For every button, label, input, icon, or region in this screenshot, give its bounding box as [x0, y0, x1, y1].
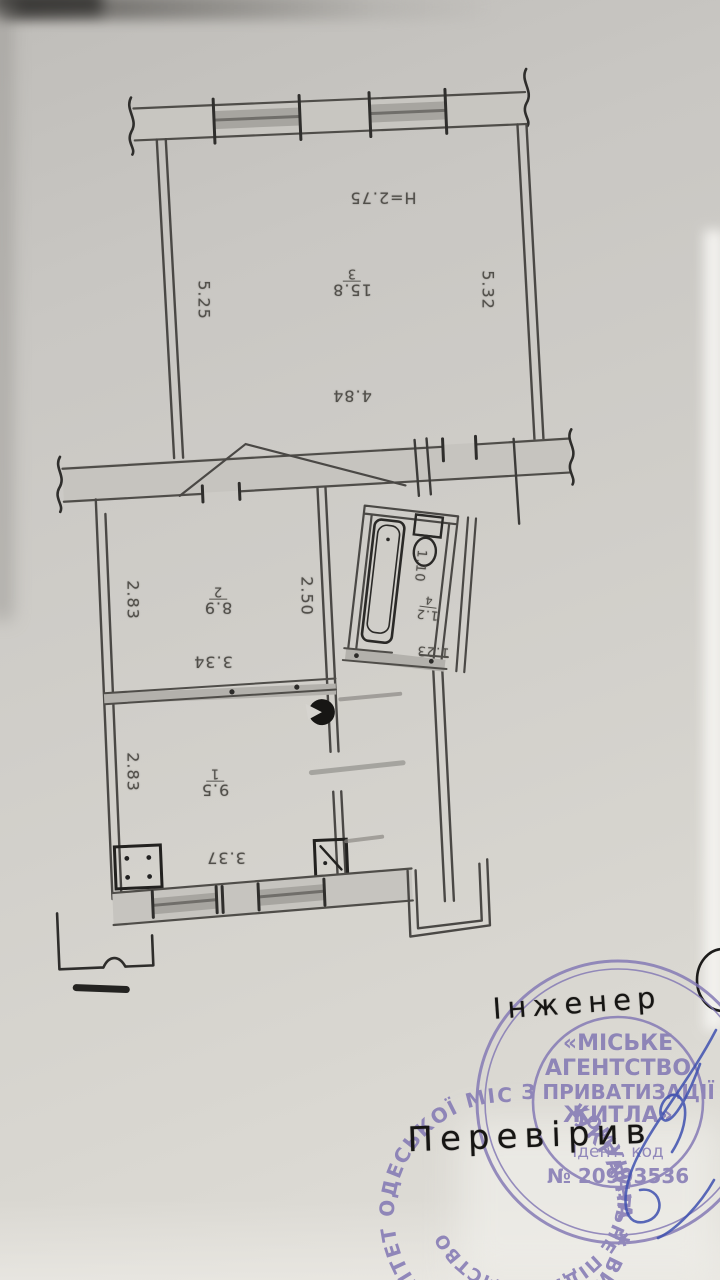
stamp-line2: АГЕНТСТВО: [545, 1056, 691, 1081]
basin-symbol: [305, 699, 335, 726]
top-wall: [128, 69, 531, 155]
checked-by-note: Перевірив: [407, 1112, 653, 1161]
corridor-right-wall: [433, 663, 454, 901]
bathtub-symbol: [361, 519, 405, 644]
agency-stamp: УКРАЇНА ✱ ВИКОНАВЧИЙ КОМІТЕТ ОДЕСЬКОЇ МІ…: [0, 0, 720, 1280]
bottom-step-wall: [407, 859, 490, 936]
floor-plan-drawing: УКРАЇНА ✱ ВИКОНАВЧИЙ КОМІТЕТ ОДЕСЬКОЇ МІ…: [0, 0, 720, 1280]
door-threshold: [311, 763, 403, 773]
plan-group: [23, 68, 595, 993]
wall-break-icon: [56, 457, 63, 512]
bottom-wall: [112, 868, 414, 925]
room3-side-walls: [157, 124, 544, 469]
sink-symbol: [314, 839, 347, 876]
corridor-wall: [56, 429, 577, 543]
bathroom-block: [343, 505, 482, 674]
stamp-line1: «МІСЬКЕ: [563, 1031, 673, 1056]
stamp-number: № 20993536: [547, 1164, 689, 1188]
scanned-floor-plan-page: УКРАЇНА ✱ ВИКОНАВЧИЙ КОМІТЕТ ОДЕСЬКОЇ МІ…: [0, 0, 720, 1280]
stamp-line3: З ПРИВАТИЗАЦІЇ: [521, 1080, 715, 1104]
partition-wall: [104, 679, 336, 705]
wall-break-icon: [128, 97, 135, 154]
